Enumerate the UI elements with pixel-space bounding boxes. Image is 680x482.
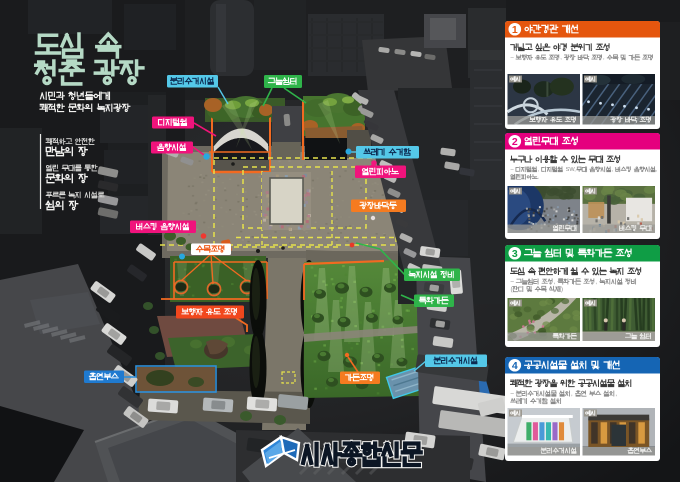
svg-text:2: 2 bbox=[512, 136, 518, 148]
svg-text:1: 1 bbox=[512, 24, 518, 36]
svg-text:4: 4 bbox=[512, 360, 518, 372]
svg-text:SW,: SW, bbox=[566, 167, 577, 173]
svg-text:): ) bbox=[561, 287, 563, 293]
svg-text:3: 3 bbox=[512, 248, 518, 260]
svg-text:(: ( bbox=[511, 287, 513, 293]
